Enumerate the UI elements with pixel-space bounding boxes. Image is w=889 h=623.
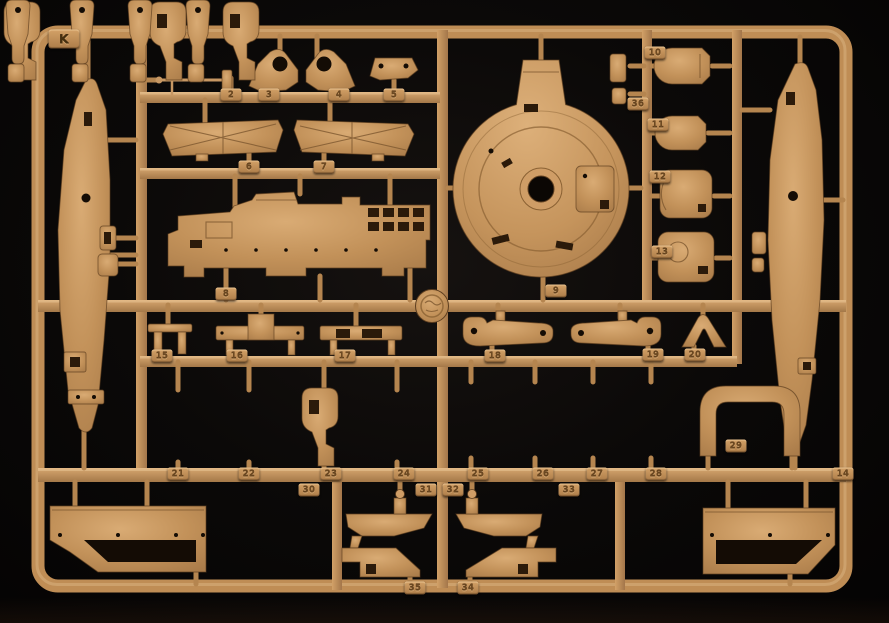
part-tab-11: 11 — [648, 119, 669, 132]
part-tab-13: 13 — [652, 246, 673, 259]
part-tab-8: 8 — [216, 288, 237, 301]
part-tab-34: 34 — [458, 582, 479, 595]
part-tab-32: 32 — [443, 484, 464, 497]
part-tab-21: 21 — [168, 468, 189, 481]
part-tab-5: 5 — [384, 89, 405, 102]
part-tab-36: 36 — [628, 98, 649, 111]
photo-canvas: K234567891036111213151617181920212223242… — [0, 0, 889, 623]
part-tab-35: 35 — [405, 582, 426, 595]
part-tab-27: 27 — [587, 468, 608, 481]
part-tab-9: 9 — [546, 285, 567, 298]
part-tab-18: 18 — [485, 350, 506, 363]
part-tab-6: 6 — [239, 161, 260, 174]
part-tab-25: 25 — [468, 468, 489, 481]
part-tab-17: 17 — [335, 350, 356, 363]
part-tab-4: 4 — [329, 89, 350, 102]
part-tab-K: K — [49, 30, 80, 49]
part-tab-20: 20 — [685, 349, 706, 362]
part-tab-7: 7 — [314, 161, 335, 174]
part-tab-24: 24 — [394, 468, 415, 481]
part-tab-29: 29 — [726, 440, 747, 453]
part-tab-30: 30 — [299, 484, 320, 497]
part-tab-33: 33 — [559, 484, 580, 497]
part-tab-15: 15 — [152, 350, 173, 363]
part-tab-23: 23 — [321, 468, 342, 481]
part-tab-14: 14 — [833, 468, 854, 481]
part-tab-10: 10 — [645, 47, 666, 60]
part-tab-31: 31 — [416, 484, 437, 497]
part-tab-12: 12 — [650, 171, 671, 184]
part-tab-19: 19 — [643, 349, 664, 362]
part-tab-26: 26 — [533, 468, 554, 481]
part-tab-3: 3 — [259, 89, 280, 102]
part-tab-16: 16 — [227, 350, 248, 363]
part-tab-2: 2 — [221, 89, 242, 102]
part-number-tabs: K234567891036111213151617181920212223242… — [0, 0, 889, 623]
part-tab-22: 22 — [239, 468, 260, 481]
part-tab-28: 28 — [646, 468, 667, 481]
